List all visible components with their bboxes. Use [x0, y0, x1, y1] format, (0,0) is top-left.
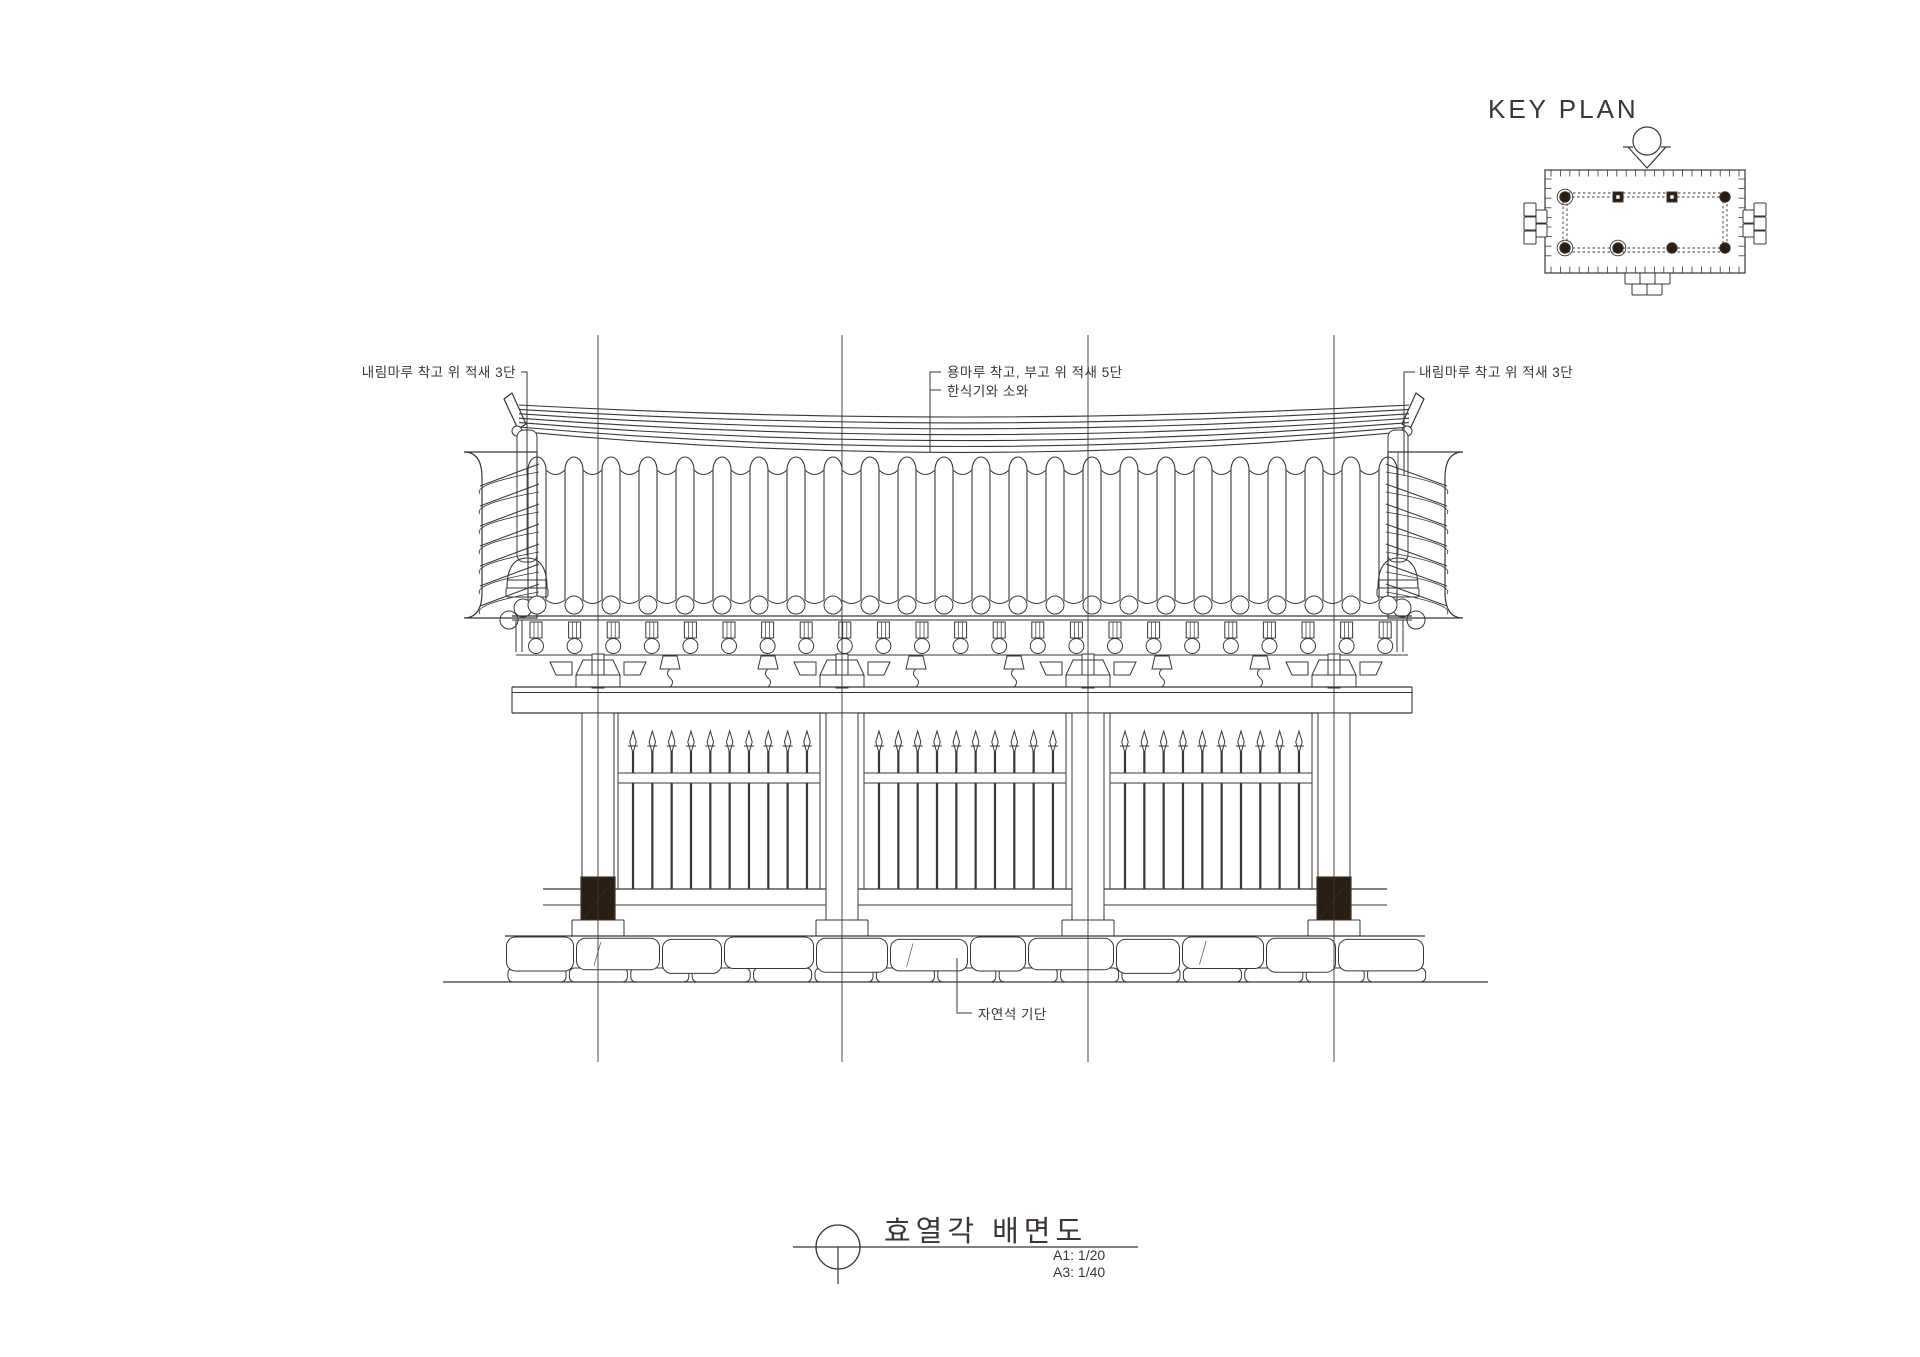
plan-column [1667, 243, 1677, 253]
square-rafter-end [1263, 622, 1275, 638]
square-rafter-end [993, 622, 1005, 638]
bracket-arm [1286, 662, 1308, 675]
square-rafter-end [839, 622, 851, 638]
tile-bottom-scallop [1212, 600, 1231, 604]
convex-tile [1083, 457, 1101, 600]
square-rafter-end [916, 622, 928, 638]
key-plan-diagram [1524, 127, 1766, 295]
eave-end-tile [972, 596, 990, 614]
eave-end-tile [1194, 596, 1212, 614]
convex-tile [713, 457, 731, 600]
round-rafter-end [1223, 639, 1238, 654]
bracket-arm [1360, 662, 1382, 675]
plan-step [1743, 210, 1754, 223]
eave-end-tile [861, 596, 879, 614]
bracket-arm [794, 662, 816, 675]
key-plan-label: KEY PLAN [1488, 94, 1639, 124]
square-rafter-end [1379, 622, 1391, 638]
square-rafter-end [607, 622, 619, 638]
square-rafter-end [800, 622, 812, 638]
spear-head [934, 731, 940, 753]
spear-head [895, 731, 901, 753]
round-rafter-end [1339, 639, 1354, 654]
plan-wall-line [1563, 193, 1727, 252]
plan-step [1524, 231, 1536, 244]
tile-bottom-scallop [842, 600, 861, 604]
tile-valley [1101, 470, 1120, 475]
eave-end-tile [1231, 596, 1249, 614]
elevation-drawing: KEY PLAN 내림마루 착고 위 적새 3단 용마루 착고, 부고 위 적새… [0, 0, 1920, 1357]
tile-bottom-scallop [1027, 600, 1046, 604]
round-rafter-end [760, 639, 775, 654]
eave-end-tile [713, 596, 731, 614]
support-scroll [668, 669, 673, 687]
plan-step [1524, 217, 1536, 230]
plan-step [1524, 203, 1536, 216]
tile-valley [1249, 470, 1268, 475]
foundation-stone [577, 938, 660, 970]
hip-dome-band [1377, 588, 1419, 597]
convex-tile [750, 457, 768, 600]
square-rafter-end [1186, 622, 1198, 638]
north-symbol-arrow [1628, 147, 1666, 168]
convex-tile [861, 457, 879, 600]
annotation-right-ridge: 내림마루 착고 위 적새 3단 [1419, 365, 1573, 380]
spear-head [649, 731, 655, 753]
gable-hatch [1386, 564, 1447, 586]
convex-tile [898, 457, 916, 600]
tile-bottom-scallop [1101, 600, 1120, 604]
tile-valley [805, 470, 824, 475]
convex-tile [676, 457, 694, 600]
tile-bottom-scallop [620, 600, 639, 604]
foundation-stone [1267, 938, 1336, 972]
tile-bottom-scallop [1323, 600, 1342, 604]
round-rafter-end [1262, 639, 1277, 654]
convex-tile [1009, 457, 1027, 600]
spear-head [914, 731, 920, 753]
foundation-stone [1339, 939, 1424, 971]
tile-valley [768, 470, 787, 475]
annotation-roof-tiles: 한식기와 소와 [947, 384, 1029, 399]
spear-head [688, 731, 694, 753]
spear-head [1180, 731, 1186, 753]
bracket-arm [1114, 662, 1136, 675]
tile-valley [657, 470, 676, 475]
square-rafter-end [1109, 622, 1121, 638]
drawing-sheet: KEY PLAN 내림마루 착고 위 적새 3단 용마루 착고, 부고 위 적새… [0, 0, 1920, 1357]
annotation-left-ridge: 내림마루 착고 위 적새 3단 [362, 365, 516, 380]
annotation-stylobate: 자연석 기단 [978, 1007, 1047, 1022]
tile-bottom-scallop [805, 600, 824, 604]
convex-tile [565, 457, 583, 600]
plan-step [1754, 217, 1766, 230]
tile-bottom-scallop [694, 600, 713, 604]
eave-end-tile [676, 596, 694, 614]
eave-end-tile [1120, 596, 1138, 614]
eave-end-tile [1305, 596, 1323, 614]
eave-edge [512, 616, 1412, 620]
soro-block [758, 656, 778, 669]
round-rafter-end [915, 639, 930, 654]
eave-end-tile [602, 596, 620, 614]
support-scroll [914, 669, 919, 687]
round-rafter-end [606, 639, 621, 654]
eave-end-tile [898, 596, 916, 614]
spear-head [1238, 731, 1244, 753]
soro-block [1152, 656, 1172, 669]
soro-block [906, 656, 926, 669]
tile-bottom-scallop [1064, 600, 1083, 604]
foundation-stone [507, 937, 574, 971]
scale-a3: A3: 1/40 [1053, 1264, 1105, 1280]
tile-bottom-scallop [546, 600, 565, 604]
round-rafter-end [992, 639, 1007, 654]
plan-step [1647, 284, 1662, 295]
spear-head [953, 731, 959, 753]
square-rafter-end [955, 622, 967, 638]
soro-block [660, 656, 680, 669]
eave-end-tile [1157, 596, 1175, 614]
soro-block [1250, 656, 1270, 669]
square-rafter-end [762, 622, 774, 638]
round-rafter-end [1146, 639, 1161, 654]
square-rafter-end [1302, 622, 1314, 638]
eave-end-tile [750, 596, 768, 614]
spear-head [765, 731, 771, 753]
convex-tile [1046, 457, 1064, 600]
square-rafter-end [1341, 622, 1353, 638]
tile-valley [1323, 470, 1342, 475]
tile-bottom-scallop [731, 600, 750, 604]
convex-tile [1194, 457, 1212, 600]
tile-valley [879, 470, 898, 475]
spear-head [1218, 731, 1224, 753]
plan-step [1640, 273, 1655, 284]
corner-plinths [581, 877, 1351, 921]
convex-tile [602, 457, 620, 600]
eave-end-tile [1379, 596, 1397, 614]
tile-valley [731, 470, 750, 475]
scale-a1: A1: 1/20 [1053, 1247, 1105, 1263]
convex-tile [1305, 457, 1323, 600]
spear-head [1030, 731, 1036, 753]
square-rafter-end [1225, 622, 1237, 638]
tile-bottom-scallop [1360, 600, 1379, 604]
spear-head [1122, 731, 1128, 753]
hip-dome-band [506, 588, 548, 597]
support-scroll [1160, 669, 1165, 687]
foundation-stone [817, 938, 888, 972]
round-rafter-end [876, 639, 891, 654]
tile-valley [953, 470, 972, 475]
ridge-end-tile-left [504, 393, 526, 429]
plan-column [1560, 243, 1570, 253]
tile-valley [842, 470, 861, 475]
eave-end-tile [639, 596, 657, 614]
tile-valley [583, 470, 602, 475]
spear-head [876, 731, 882, 753]
ridge-end-tile-right [1402, 393, 1424, 429]
spear-head [1257, 731, 1263, 753]
tile-bottom-scallop [768, 600, 787, 604]
spear-head [1296, 731, 1302, 753]
ridge-layer-line [519, 427, 1409, 447]
tile-bottom-scallop [916, 600, 935, 604]
spear-head [726, 731, 732, 753]
bracket-arm [624, 662, 646, 675]
annotation-main-ridge: 용마루 착고, 부고 위 적새 5단 [947, 365, 1123, 380]
square-rafter-end [684, 622, 696, 638]
round-rafter-end [953, 639, 968, 654]
spear-head [1199, 731, 1205, 753]
tile-valley [1027, 470, 1046, 475]
north-symbol-circle [1633, 127, 1661, 155]
spear-head [668, 731, 674, 753]
roof-ridge [504, 393, 1424, 452]
tile-valley [1138, 470, 1157, 475]
foundation-stone [1029, 938, 1114, 970]
plan-step [1625, 273, 1640, 284]
tile-bottom-scallop [1286, 600, 1305, 604]
round-rafter-end [1378, 639, 1393, 654]
convex-tile [972, 457, 990, 600]
spear-head [1276, 731, 1282, 753]
convex-tile [935, 457, 953, 600]
tile-bottom-scallop [583, 600, 602, 604]
tile-valley [546, 470, 565, 475]
tile-bottom-scallop [990, 600, 1009, 604]
tile-valley [620, 470, 639, 475]
square-rafter-end [1032, 622, 1044, 638]
eave-end-tile [1342, 596, 1360, 614]
tile-valley [1064, 470, 1083, 475]
bracket-arm [868, 662, 890, 675]
convex-tile [1157, 457, 1175, 600]
plan-column [1720, 192, 1730, 202]
support-scroll [1258, 669, 1263, 687]
convex-tile [787, 457, 805, 600]
spear-head [1050, 731, 1056, 753]
foundation-stone-lower [754, 968, 812, 982]
spear-head [746, 731, 752, 753]
bracket-arm [550, 662, 572, 675]
support-scroll [1012, 669, 1017, 687]
gable-hatch [480, 564, 539, 586]
tile-valley [1286, 470, 1305, 475]
square-rafter-end [569, 622, 581, 638]
square-rafter-end [1070, 622, 1082, 638]
foundation-stone [725, 937, 814, 969]
stone-stylobate [443, 936, 1488, 982]
spear-head [784, 731, 790, 753]
plan-wall-line [1567, 197, 1723, 248]
support-scroll [766, 669, 771, 687]
plan-step [1743, 224, 1754, 237]
eave-end-tile [1009, 596, 1027, 614]
plan-column [1560, 192, 1570, 202]
convex-tile [1268, 457, 1286, 600]
spear-head [972, 731, 978, 753]
spear-head [1141, 731, 1147, 753]
tile-bottom-scallop [657, 600, 676, 604]
convex-tile [1120, 457, 1138, 600]
plan-step [1754, 231, 1766, 244]
eave-end-tile [1083, 596, 1101, 614]
roof-tiles [528, 457, 1397, 614]
plan-column-square-core [1670, 195, 1674, 199]
square-rafter-end [723, 622, 735, 638]
eave-end-tile [824, 596, 842, 614]
eave-end-tile [787, 596, 805, 614]
bracket-arm [1040, 662, 1062, 675]
square-rafter-end [530, 622, 542, 638]
round-rafter-end [644, 639, 659, 654]
square-rafter-end [1148, 622, 1160, 638]
bracket-band [550, 654, 1382, 688]
ridge-layer-line [519, 405, 1409, 417]
tile-valley [990, 470, 1009, 475]
eave-end-tile [935, 596, 953, 614]
plan-step [1536, 224, 1547, 237]
tile-bottom-scallop [879, 600, 898, 604]
convex-tile [824, 457, 842, 600]
spear-head [1160, 731, 1166, 753]
soro-block [1004, 656, 1024, 669]
round-rafter-end [837, 639, 852, 654]
tile-valley [916, 470, 935, 475]
column-pedestals [572, 920, 1360, 936]
plan-step [1536, 210, 1547, 223]
eave-end-tile [1268, 596, 1286, 614]
round-rafter-end [722, 639, 737, 654]
spear-head [804, 731, 810, 753]
square-rafter-end [877, 622, 889, 638]
foundation-stone [1183, 937, 1264, 969]
foundation-stone [971, 937, 1026, 971]
eave-end-tile [528, 596, 546, 614]
round-rafter-end [529, 639, 544, 654]
eave-end-tile [565, 596, 583, 614]
tile-bottom-scallop [953, 600, 972, 604]
tile-valley [1360, 470, 1379, 475]
square-rafter-end [646, 622, 658, 638]
plan-step [1655, 273, 1670, 284]
rafter-ends [516, 622, 1408, 655]
foundation-stone [1117, 939, 1180, 973]
plan-column [1720, 243, 1730, 253]
plan-step [1632, 284, 1647, 295]
round-rafter-end [799, 639, 814, 654]
tile-bottom-scallop [1175, 600, 1194, 604]
foundation-stone [663, 939, 722, 973]
spear-head [992, 731, 998, 753]
round-rafter-end [1108, 639, 1123, 654]
round-rafter-end [1185, 639, 1200, 654]
convex-tile [639, 457, 657, 600]
round-rafter-end [1030, 639, 1045, 654]
spear-head [1011, 731, 1017, 753]
plan-step [1754, 203, 1766, 216]
convex-tile [1342, 457, 1360, 600]
foundation-stone-lower [1183, 968, 1241, 982]
drawing-title: 효열각 배면도 [884, 1215, 1087, 1248]
tile-valley [1175, 470, 1194, 475]
fence-panels [543, 713, 1387, 905]
spear-head [707, 731, 713, 753]
plan-column-square-core [1616, 195, 1620, 199]
plan-column [1613, 243, 1623, 253]
foundation-stone [891, 939, 968, 971]
round-rafter-end [683, 639, 698, 654]
round-rafter-end [567, 639, 582, 654]
eave-end-tile [1046, 596, 1064, 614]
tile-valley [694, 470, 713, 475]
tile-valley [1212, 470, 1231, 475]
spear-head [630, 731, 636, 753]
round-rafter-end [1301, 639, 1316, 654]
tile-bottom-scallop [1249, 600, 1268, 604]
tile-bottom-scallop [1138, 600, 1157, 604]
plan-outline [1545, 170, 1745, 273]
round-rafter-end [1069, 639, 1084, 654]
ridge-layer-line [519, 423, 1409, 441]
convex-tile [1231, 457, 1249, 600]
